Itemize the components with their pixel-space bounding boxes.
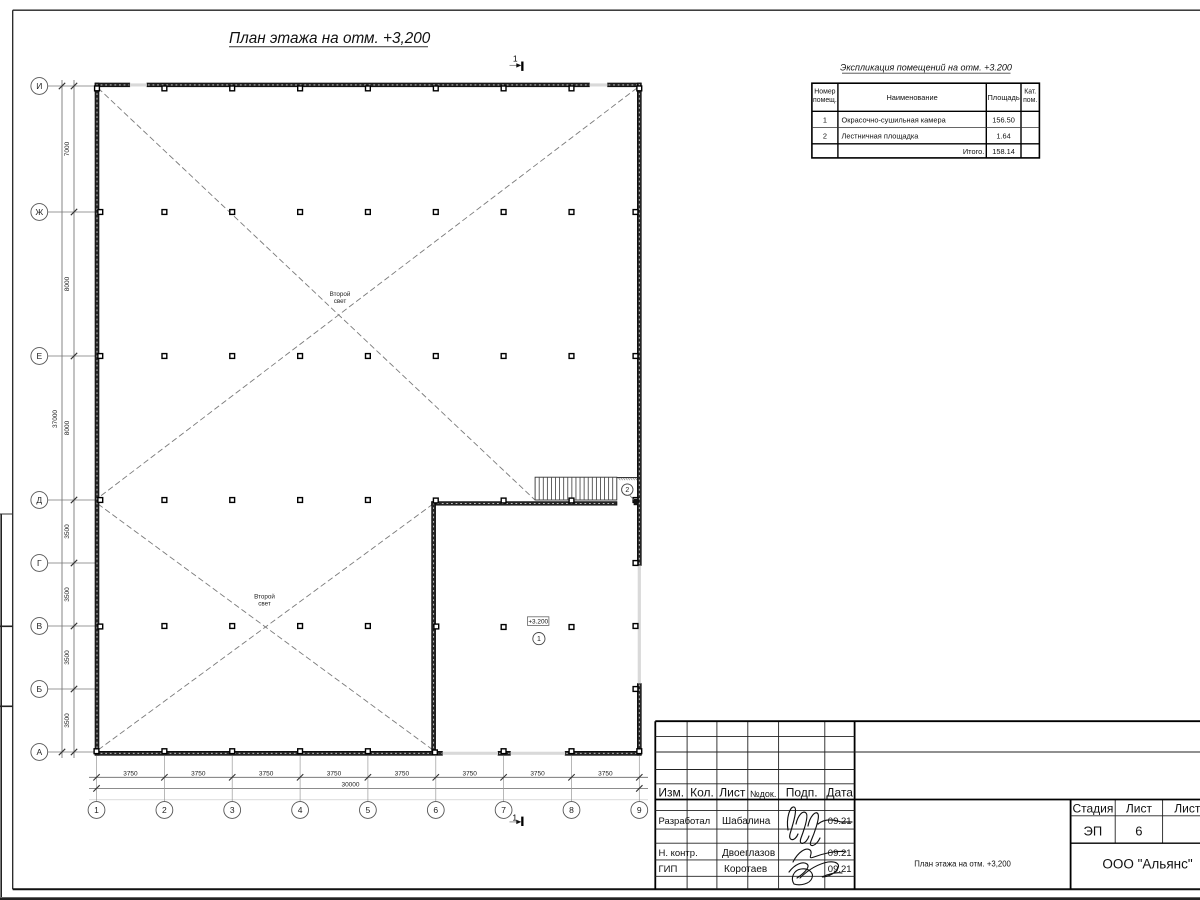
svg-text:6: 6	[1135, 824, 1142, 839]
svg-text:30000: 30000	[341, 782, 359, 789]
svg-text:Экспликация помещений на отм.: Экспликация помещений на отм. +3.200	[840, 63, 1012, 73]
svg-text:Лестничная площадка: Лестничная площадка	[842, 132, 920, 141]
svg-text:4: 4	[298, 805, 303, 815]
svg-text:Н. контр.: Н. контр.	[659, 848, 698, 859]
svg-text:№док.: №док.	[750, 789, 776, 799]
svg-text:Изм.: Изм.	[658, 785, 684, 799]
svg-text:Второй: Второй	[330, 290, 351, 298]
svg-text:1.64: 1.64	[996, 132, 1010, 141]
svg-text:3: 3	[230, 805, 235, 815]
svg-text:А: А	[36, 747, 42, 757]
svg-text:Кат.: Кат.	[1024, 89, 1036, 96]
svg-text:3750: 3750	[462, 770, 477, 777]
svg-text:8000: 8000	[64, 420, 71, 435]
svg-text:3750: 3750	[530, 770, 545, 777]
svg-text:свет: свет	[334, 298, 347, 305]
svg-text:3750: 3750	[395, 770, 410, 777]
svg-text:7000: 7000	[64, 141, 71, 156]
svg-text:5: 5	[366, 805, 371, 815]
svg-text:Кол.: Кол.	[690, 785, 714, 799]
svg-text:1: 1	[537, 636, 541, 643]
svg-text:158.14: 158.14	[992, 147, 1015, 156]
svg-text:Стадия: Стадия	[1072, 801, 1113, 815]
svg-text:Подп.: Подп.	[786, 785, 818, 799]
svg-text:Лист: Лист	[1126, 801, 1153, 815]
svg-text:Площадь: Площадь	[988, 93, 1020, 102]
svg-text:ООО "Альянс": ООО "Альянс"	[1102, 856, 1192, 871]
svg-text:3500: 3500	[64, 524, 71, 539]
svg-text:Б: Б	[37, 684, 43, 694]
svg-text:3750: 3750	[123, 770, 138, 777]
svg-text:Окрасочно-сушильная камера: Окрасочно-сушильная камера	[842, 115, 947, 124]
svg-text:Ж: Ж	[35, 207, 43, 217]
svg-text:Наименование: Наименование	[886, 93, 937, 102]
svg-text:3500: 3500	[64, 650, 71, 665]
svg-text:+3.200: +3.200	[528, 619, 548, 626]
svg-text:Коротаев: Коротаев	[724, 864, 767, 875]
svg-text:Шабалина: Шабалина	[722, 815, 771, 827]
svg-text:ГИП: ГИП	[659, 864, 678, 875]
svg-text:9: 9	[637, 805, 642, 815]
svg-text:1: 1	[94, 805, 99, 815]
svg-text:Разработал: Разработал	[659, 816, 711, 827]
svg-text:Второй: Второй	[254, 592, 275, 600]
svg-text:3750: 3750	[191, 770, 206, 777]
svg-text:3750: 3750	[327, 770, 342, 777]
svg-text:1: 1	[513, 53, 518, 63]
svg-text:В: В	[36, 621, 42, 631]
svg-text:Итого.: Итого.	[963, 147, 984, 156]
svg-text:37000: 37000	[52, 410, 59, 428]
svg-text:План этажа на отм. +3,200: План этажа на отм. +3,200	[229, 30, 431, 47]
svg-text:1: 1	[823, 115, 827, 124]
svg-text:Номер: Номер	[814, 89, 835, 96]
svg-text:09.21: 09.21	[828, 848, 852, 859]
svg-text:2: 2	[162, 805, 167, 815]
svg-text:Г: Г	[37, 558, 42, 568]
svg-text:7: 7	[501, 805, 506, 815]
svg-text:Листов: Листов	[1174, 801, 1200, 815]
svg-text:2: 2	[823, 132, 827, 141]
svg-text:Е: Е	[36, 351, 42, 361]
svg-text:2: 2	[625, 487, 629, 494]
svg-text:6: 6	[433, 805, 438, 815]
svg-text:ЭП: ЭП	[1084, 824, 1103, 839]
svg-text:8: 8	[569, 805, 574, 815]
svg-text:Лист: Лист	[719, 785, 746, 799]
svg-text:И: И	[36, 81, 42, 91]
svg-text:3500: 3500	[64, 713, 71, 728]
svg-text:Дата: Дата	[826, 785, 853, 799]
svg-text:8000: 8000	[64, 276, 71, 291]
svg-text:План этажа на отм. +3,200: План этажа на отм. +3,200	[914, 860, 1011, 869]
svg-text:свет: свет	[258, 601, 271, 608]
svg-text:Д: Д	[36, 495, 42, 505]
svg-text:3750: 3750	[598, 770, 613, 777]
svg-text:156.50: 156.50	[992, 115, 1015, 124]
svg-text:Двоеглазов: Двоеглазов	[722, 848, 775, 859]
svg-text:3750: 3750	[259, 770, 274, 777]
svg-text:пом.: пом.	[1023, 97, 1037, 104]
svg-text:помещ.: помещ.	[813, 97, 837, 104]
svg-text:3500: 3500	[64, 587, 71, 602]
